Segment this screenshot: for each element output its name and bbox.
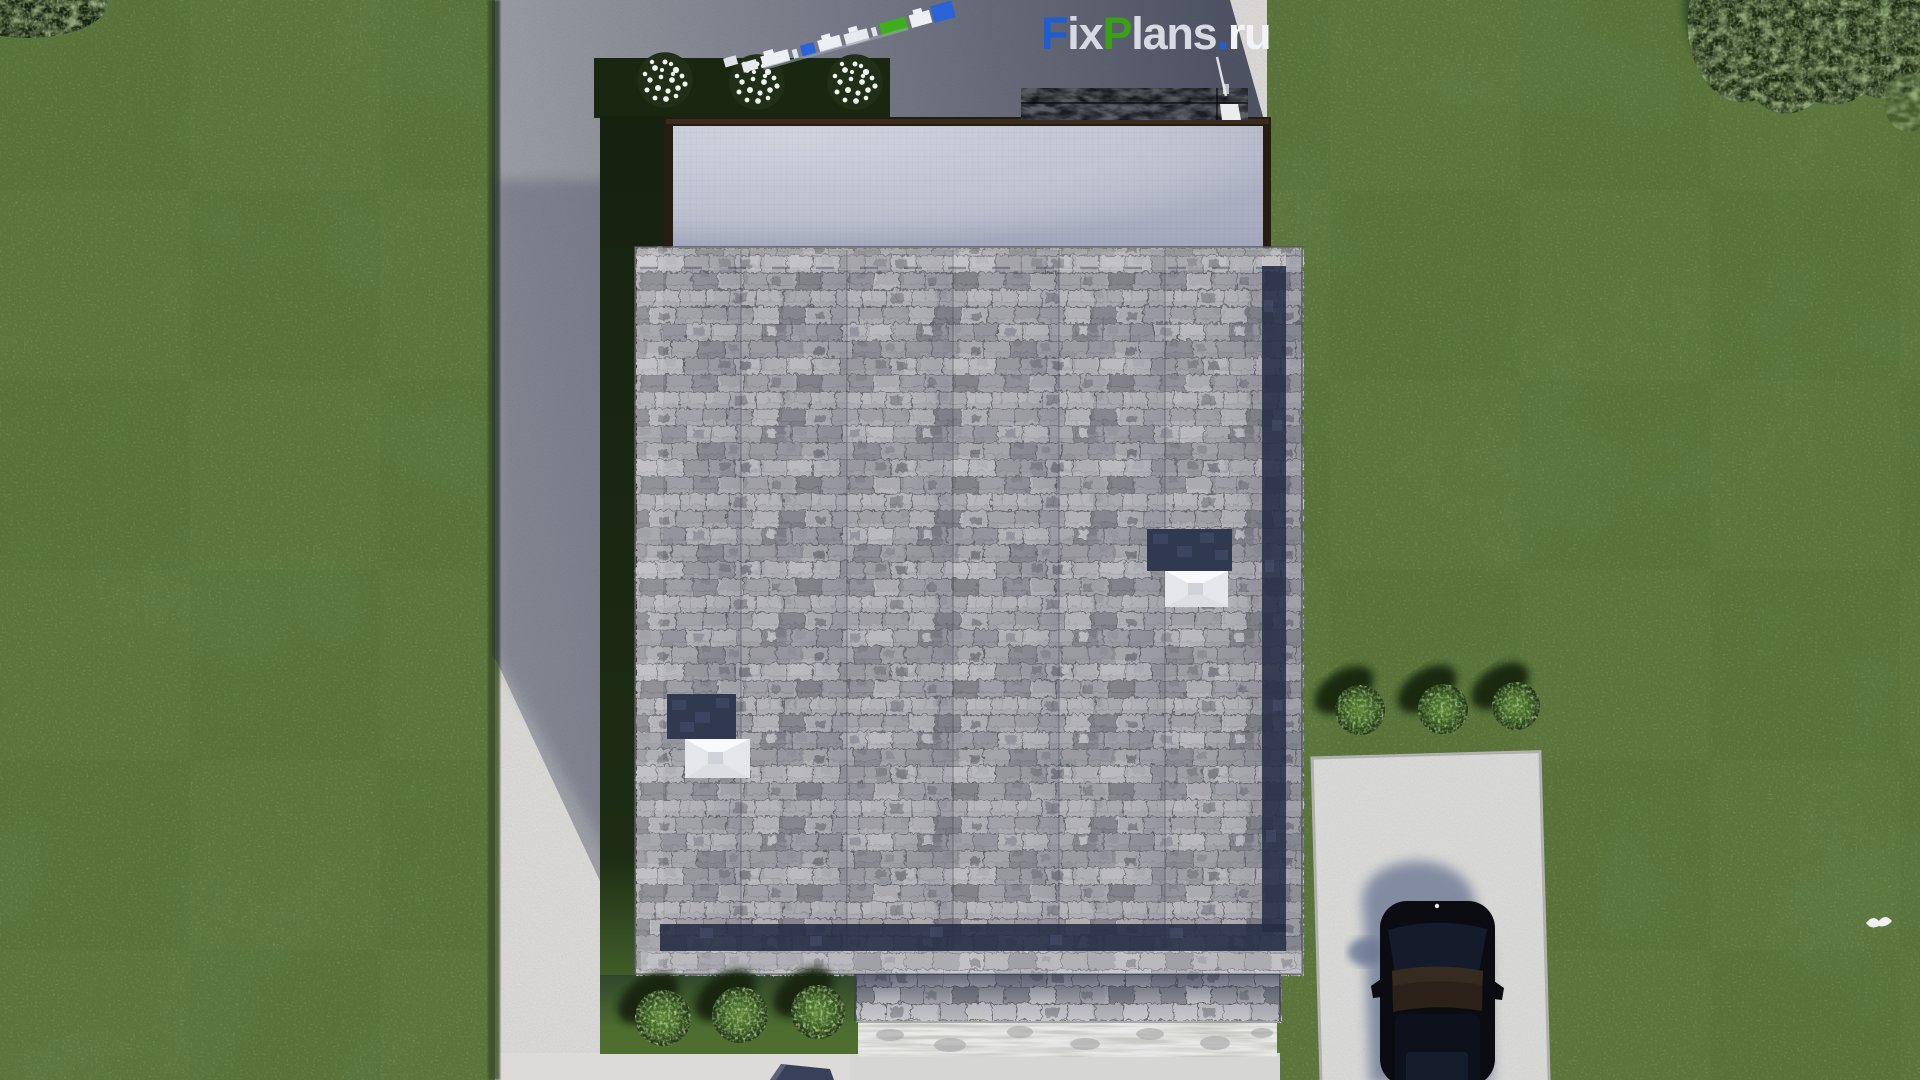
svg-text:FixPlans.ru: FixPlans.ru xyxy=(1041,8,1270,59)
